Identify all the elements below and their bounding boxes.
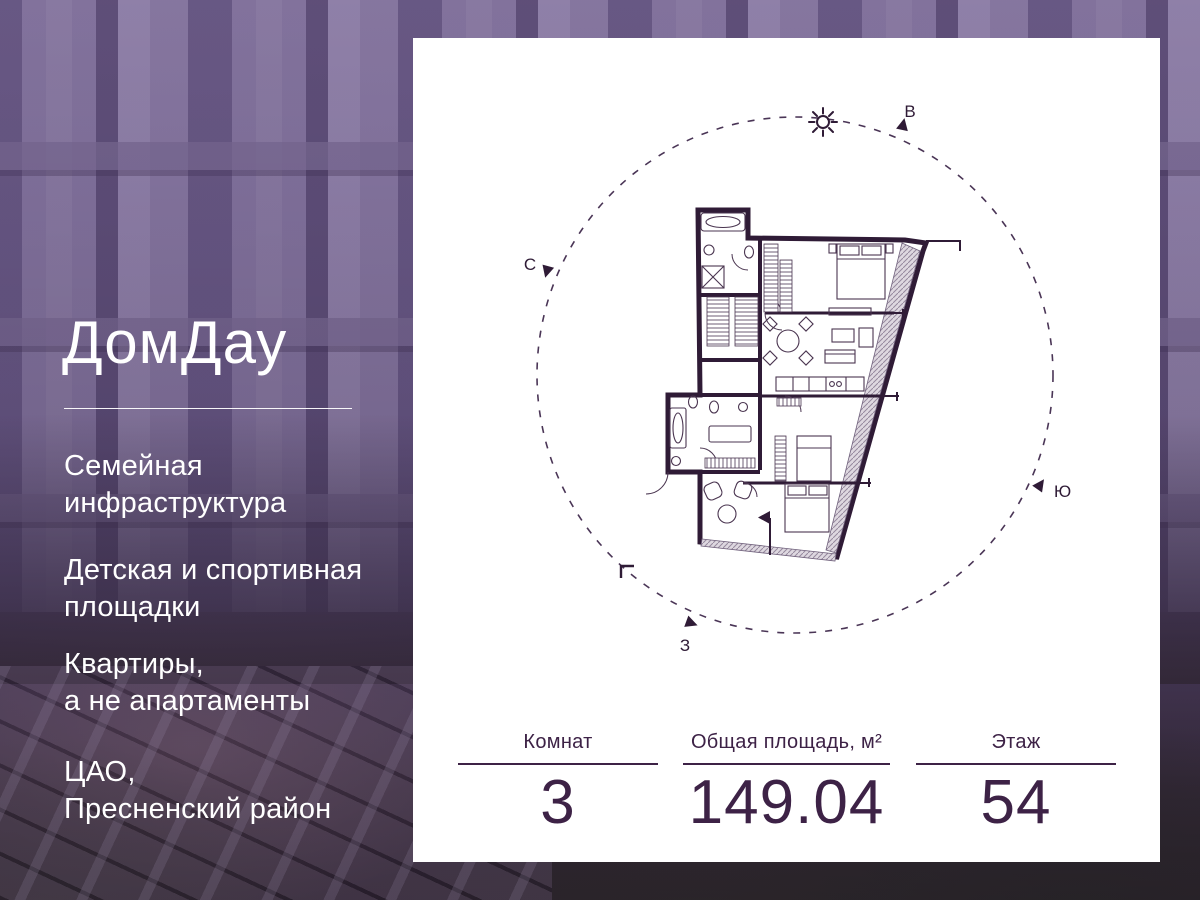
feature-line: Детская и спортивная [64,552,362,589]
sun-icon [809,108,837,136]
feature-line: Пресненский район [64,791,331,828]
south-arrow-icon [1032,476,1049,493]
feature-item-apartments: Квартиры, а не апартаменты [64,646,310,720]
stat-floor: Этаж 54 [916,730,1116,836]
compass-label-east: В [904,102,915,121]
west-arrow-icon [684,616,699,631]
stat-label: Этаж [916,730,1116,754]
feature-line: ЦАО, [64,754,331,791]
compass-label-west: З [680,636,690,655]
feature-line: площадки [64,589,362,626]
stat-total-area: Общая площадь, м² 149.04 [683,730,890,836]
apartment-outline [668,210,960,561]
stat-underline [916,763,1116,765]
feature-line: инфраструктура [64,485,286,522]
feature-item-district: ЦАО, Пресненский район [64,754,331,828]
feature-line: Семейная [64,448,286,485]
floor-plan: В С Ю З [413,38,1160,698]
stat-label: Комнат [458,730,658,754]
brand-logo: ДомДау [62,308,287,377]
logo-divider [64,408,352,409]
stat-underline [458,763,658,765]
compass-label-north: С [524,255,536,274]
feature-line: а не апартаменты [64,683,310,720]
feature-item-playgrounds: Детская и спортивная площадки [64,552,362,626]
stat-value: 149.04 [683,770,890,836]
stat-value: 3 [458,770,658,836]
compass-label-south: Ю [1054,482,1071,501]
marketing-panel: ДомДау Семейная инфраструктура Детская и… [62,308,402,868]
real-estate-banner[interactable]: ДомДау Семейная инфраструктура Детская и… [0,0,1200,900]
north-arrow-icon [539,265,554,280]
stat-value: 54 [916,770,1116,836]
feature-line: Квартиры, [64,646,310,683]
listing-card: В С Ю З [413,38,1160,862]
stat-rooms: Комнат 3 [458,730,658,836]
stat-label: Общая площадь, м² [683,730,890,754]
feature-item-family: Семейная инфраструктура [64,448,286,522]
stat-underline [683,763,890,765]
